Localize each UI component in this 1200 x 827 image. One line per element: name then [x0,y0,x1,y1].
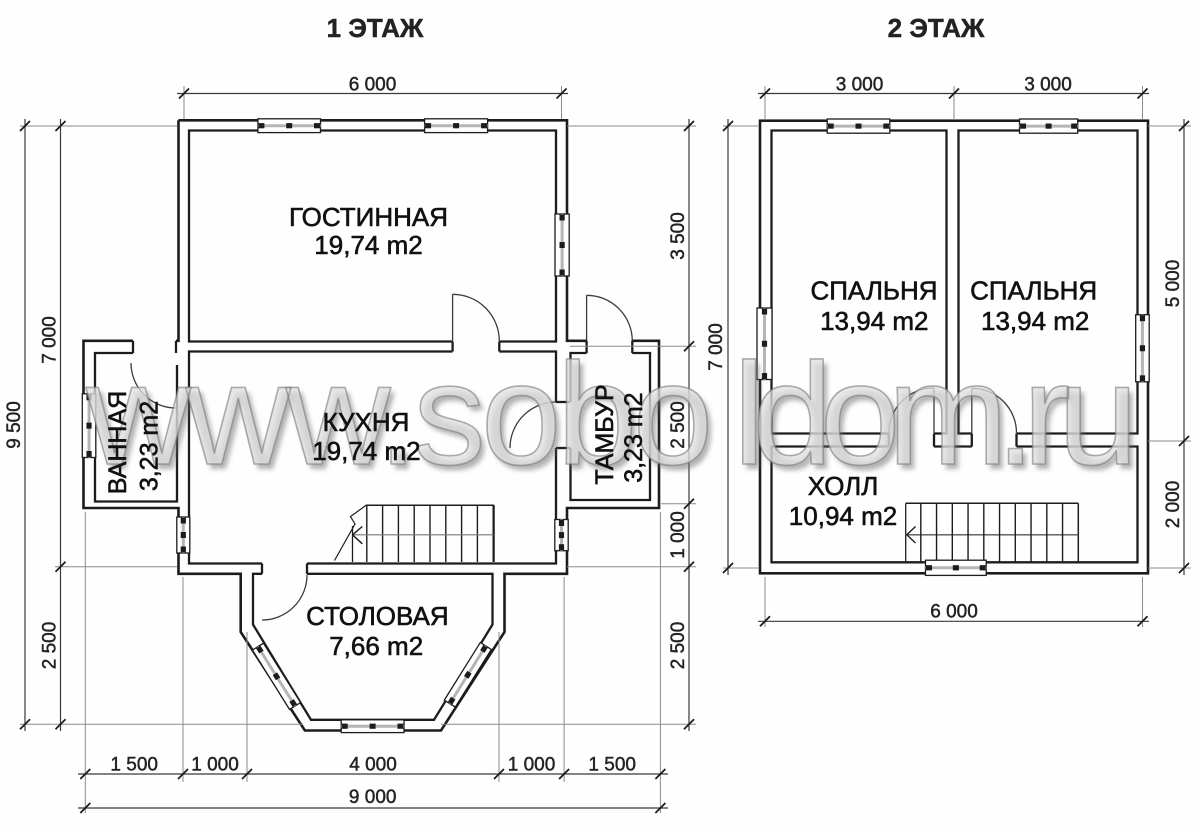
svg-text:ХОЛЛ: ХОЛЛ [808,471,879,501]
svg-text:СПАЛЬНЯ: СПАЛЬНЯ [970,276,1097,306]
svg-text:7,66 m2: 7,66 m2 [329,631,423,661]
svg-text:3,23 m2: 3,23 m2 [620,392,648,482]
svg-text:ВАННАЯ: ВАННАЯ [104,391,132,494]
svg-text:ТАМБУР: ТАМБУР [591,384,619,484]
svg-text:10,94 m2: 10,94 m2 [789,501,897,531]
svg-text:СТОЛОВАЯ: СТОЛОВАЯ [306,601,448,631]
svg-text:13,94 m2: 13,94 m2 [981,306,1089,336]
svg-text:ГОСТИННАЯ: ГОСТИННАЯ [289,202,448,232]
svg-text:19,74 m2: 19,74 m2 [312,436,420,466]
svg-text:13,94 m2: 13,94 m2 [820,306,928,336]
svg-text:КУХНЯ: КУХНЯ [323,407,410,437]
svg-text:19,74 m2: 19,74 m2 [314,230,422,260]
svg-text:СПАЛЬНЯ: СПАЛЬНЯ [810,276,937,306]
svg-text:3,23 m2: 3,23 m2 [136,401,164,491]
